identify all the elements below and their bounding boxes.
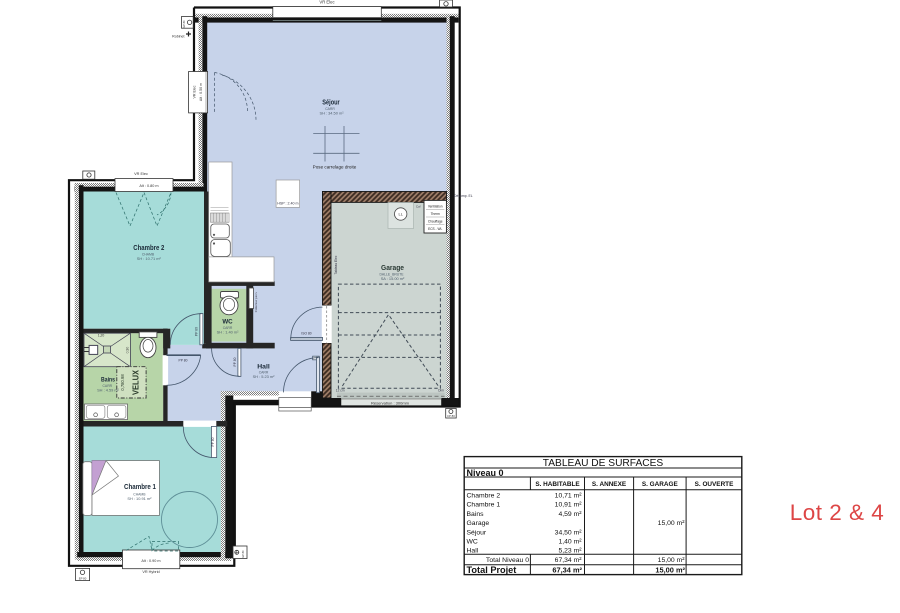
svg-text:LL: LL xyxy=(398,212,403,217)
svg-text:HSP : 2.40 m: HSP : 2.40 m xyxy=(277,202,298,206)
svg-text:SH : 10.71 m²: SH : 10.71 m² xyxy=(137,256,162,261)
svg-text:Séjour: Séjour xyxy=(322,98,340,107)
svg-text:PP 80: PP 80 xyxy=(211,437,215,446)
svg-text:VR Elec: VR Elec xyxy=(319,0,334,5)
svg-text:15,00 m²: 15,00 m² xyxy=(658,557,686,564)
svg-text:Alt : 0.90 m: Alt : 0.90 m xyxy=(141,559,160,563)
svg-text:Garage: Garage xyxy=(467,520,490,527)
svg-text:10,91 m²: 10,91 m² xyxy=(555,502,583,509)
svg-text:Séjour: Séjour xyxy=(467,529,487,536)
svg-text:0,780.98: 0,780.98 xyxy=(120,374,125,391)
svg-text:Réservation : 300mm: Réservation : 300mm xyxy=(371,400,410,405)
svg-text:EP 80: EP 80 xyxy=(79,576,87,580)
svg-text:SA : 15.00 m²: SA : 15.00 m² xyxy=(381,276,405,281)
svg-text:SH : 34.50 m²: SH : 34.50 m² xyxy=(319,111,344,116)
svg-text:1,20: 1,20 xyxy=(98,334,105,338)
svg-text:Collecteur pann.: Collecteur pann. xyxy=(254,292,258,313)
svg-text:Robinet: Robinet xyxy=(172,35,184,39)
svg-text:Dim: Dim xyxy=(438,388,444,392)
svg-text:Chambre 2: Chambre 2 xyxy=(467,493,501,500)
svg-text:15,00 m²: 15,00 m² xyxy=(655,565,685,574)
svg-text:15,00 m²: 15,00 m² xyxy=(658,520,686,527)
svg-text:VELUX: VELUX xyxy=(131,370,141,395)
svg-text:Niveau 0: Niveau 0 xyxy=(467,468,504,478)
svg-text:Garage: Garage xyxy=(381,263,404,272)
svg-text:Alt : 0.50 m: Alt : 0.50 m xyxy=(199,83,203,101)
svg-text:EP 80: EP 80 xyxy=(182,20,186,28)
svg-text:ISO 80: ISO 80 xyxy=(301,332,311,336)
svg-text:TABLEAU DE SURFACES: TABLEAU DE SURFACES xyxy=(543,458,664,469)
svg-text:S. GARAGE: S. GARAGE xyxy=(642,481,679,488)
svg-text:Bains: Bains xyxy=(101,377,115,384)
svg-text:Tableau Elec: Tableau Elec xyxy=(334,255,338,274)
svg-text:4,59 m²: 4,59 m² xyxy=(558,511,582,518)
svg-text:10,71 m²: 10,71 m² xyxy=(555,493,583,500)
svg-text:Ventilation: Ventilation xyxy=(428,205,443,209)
svg-text:Alt : 0.80 m: Alt : 0.80 m xyxy=(139,184,158,188)
svg-text:VR Elec: VR Elec xyxy=(193,85,197,98)
svg-text:Cof: Cof xyxy=(416,205,421,209)
svg-text:Therm: Therm xyxy=(431,212,441,216)
svg-text:Total Projet: Total Projet xyxy=(467,565,517,575)
svg-text:Total Niveau 0: Total Niveau 0 xyxy=(486,557,529,564)
svg-text:SH : 1.40 m²: SH : 1.40 m² xyxy=(217,329,240,334)
svg-text:Chambre 1: Chambre 1 xyxy=(124,482,156,491)
svg-text:VR Elec: VR Elec xyxy=(134,172,148,176)
svg-text:Décomp. EL: Décomp. EL xyxy=(454,194,473,198)
svg-text:Chambre 2: Chambre 2 xyxy=(133,243,164,252)
svg-text:Bains: Bains xyxy=(467,511,485,518)
svg-text:SH : 4.59 m²: SH : 4.59 m² xyxy=(97,387,120,392)
svg-text:WC: WC xyxy=(467,539,478,546)
svg-text:Hall: Hall xyxy=(467,548,479,555)
svg-text:S. HABITABLE: S. HABITABLE xyxy=(535,481,580,488)
svg-text:WC: WC xyxy=(222,319,233,326)
svg-text:VR Hybrid: VR Hybrid xyxy=(142,570,159,574)
svg-text:EP 80: EP 80 xyxy=(241,550,245,558)
svg-text:1,40 m²: 1,40 m² xyxy=(558,539,582,546)
svg-text:CP 80: CP 80 xyxy=(447,414,455,418)
svg-text:Chauffage: Chauffage xyxy=(428,220,443,224)
svg-text:PP 80: PP 80 xyxy=(233,357,237,366)
svg-text:0,90: 0,90 xyxy=(126,347,130,354)
svg-text:SH : 10.91 m²: SH : 10.91 m² xyxy=(127,496,152,501)
svg-text:12 cm: 12 cm xyxy=(336,388,345,392)
svg-text:ECS - WL: ECS - WL xyxy=(428,227,442,231)
svg-text:34,50 m²: 34,50 m² xyxy=(555,529,583,536)
svg-text:SH : 5.23 m²: SH : 5.23 m² xyxy=(253,374,276,379)
svg-text:PP 80: PP 80 xyxy=(195,327,199,336)
svg-text:5,23 m²: 5,23 m² xyxy=(558,548,582,555)
svg-text:Pose carrelage droite: Pose carrelage droite xyxy=(313,164,357,169)
svg-text:PP 80: PP 80 xyxy=(179,358,188,362)
svg-text:67,34 m²: 67,34 m² xyxy=(555,557,583,564)
svg-text:Chambre 1: Chambre 1 xyxy=(467,502,501,509)
svg-text:S. ANNEXE: S. ANNEXE xyxy=(592,481,627,488)
svg-text:67,34 m²: 67,34 m² xyxy=(552,565,582,574)
svg-text:S. OUVERTE: S. OUVERTE xyxy=(695,481,734,488)
svg-text:Lot 2 & 4: Lot 2 & 4 xyxy=(790,500,885,525)
